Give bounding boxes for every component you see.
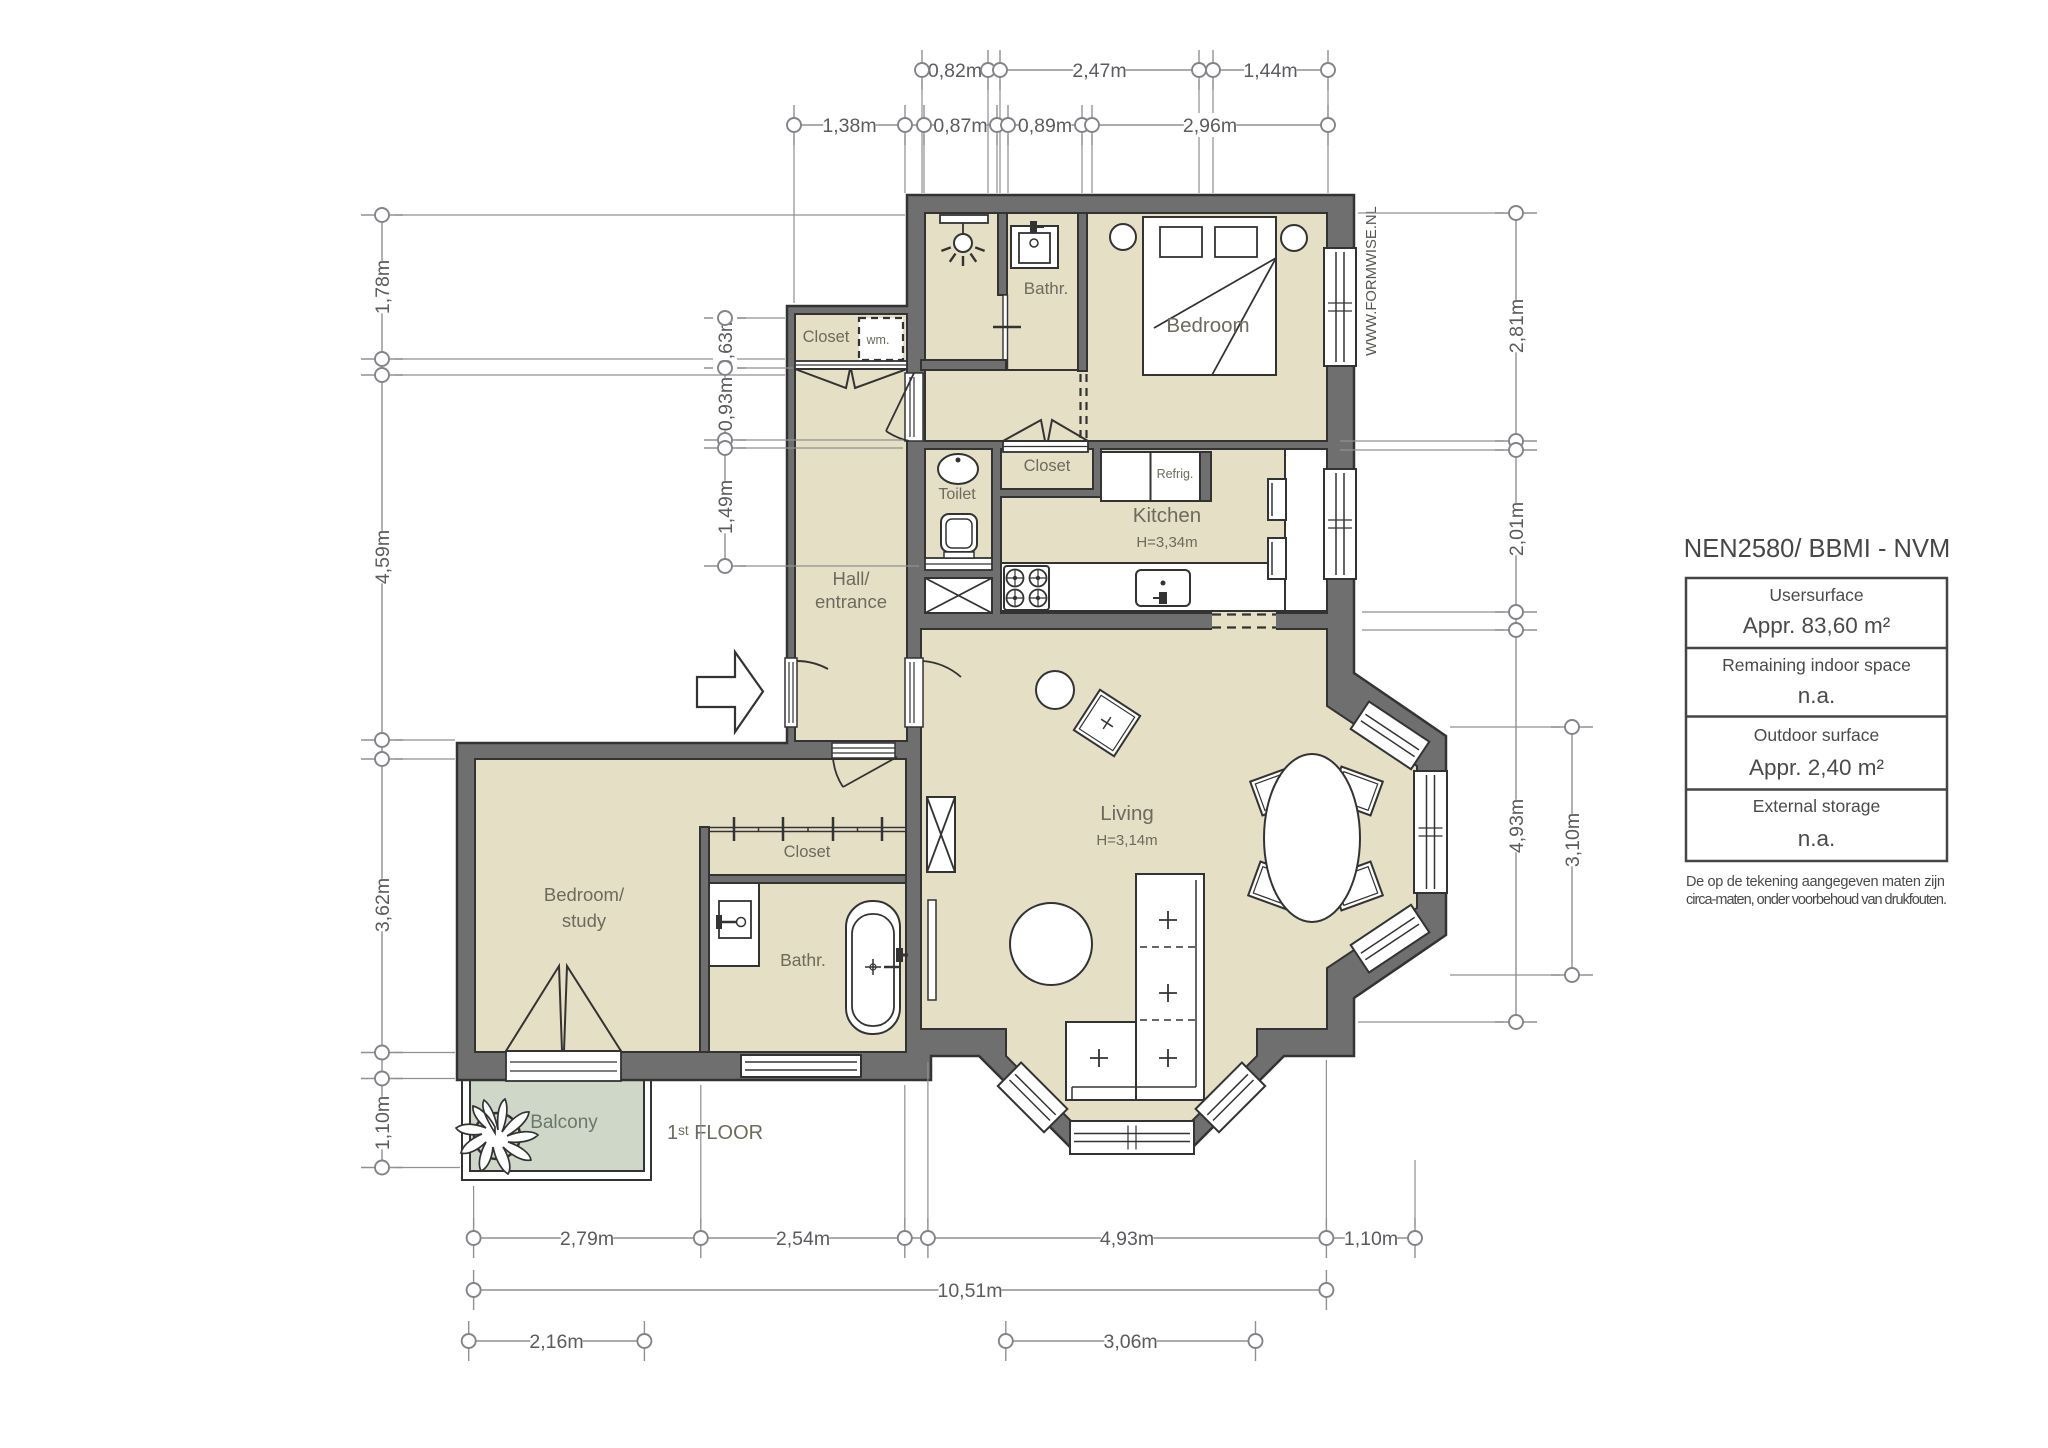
svg-text:Hall/: Hall/	[832, 568, 870, 589]
svg-text:Bedroom: Bedroom	[1166, 314, 1249, 337]
svg-text:study: study	[562, 910, 607, 931]
svg-text:Living: Living	[1100, 802, 1154, 825]
svg-text:1,10m: 1,10m	[1344, 1228, 1398, 1250]
svg-text:Appr. 83,60 m²: Appr. 83,60 m²	[1743, 613, 1891, 638]
svg-text:2,54m: 2,54m	[776, 1228, 830, 1250]
svg-text:Closet: Closet	[1024, 457, 1071, 475]
svg-text:4,93m: 4,93m	[1100, 1228, 1154, 1250]
svg-text:Kitchen: Kitchen	[1133, 504, 1201, 527]
svg-text:1,49m: 1,49m	[715, 480, 737, 534]
svg-text:Outdoor surface: Outdoor surface	[1754, 725, 1879, 745]
svg-text:2,96m: 2,96m	[1183, 115, 1237, 137]
svg-text:2,16m: 2,16m	[529, 1331, 583, 1353]
svg-text:Appr. 2,40 m²: Appr. 2,40 m²	[1749, 755, 1885, 780]
svg-text:3,10m: 3,10m	[1562, 813, 1584, 867]
svg-text:0,93m: 0,93m	[715, 377, 737, 431]
svg-text:10,51m: 10,51m	[937, 1280, 1002, 1302]
svg-text:WWW.FORMWISE.NL: WWW.FORMWISE.NL	[1364, 206, 1380, 356]
svg-text:NEN2580/ BBMI - NVM: NEN2580/ BBMI - NVM	[1684, 535, 1950, 563]
svg-text:Usersurface: Usersurface	[1769, 585, 1863, 605]
svg-text:2,81m: 2,81m	[1506, 299, 1528, 353]
svg-text:Balcony: Balcony	[530, 1112, 598, 1133]
svg-text:Bathr.: Bathr.	[1024, 279, 1068, 298]
svg-text:1,10m: 1,10m	[372, 1096, 394, 1150]
svg-text:Bedroom/: Bedroom/	[544, 884, 625, 905]
svg-text:H=3,14m: H=3,14m	[1096, 832, 1157, 849]
svg-text:Closet: Closet	[803, 328, 850, 346]
svg-text:3,62m: 3,62m	[372, 878, 394, 932]
svg-text:0,89m: 0,89m	[1018, 115, 1072, 137]
svg-text:Refrig.: Refrig.	[1157, 467, 1194, 481]
svg-text:2,79m: 2,79m	[560, 1228, 614, 1250]
svg-text:circa-maten, onder voorbehoud: circa-maten, onder voorbehoud van drukfo…	[1686, 892, 1947, 908]
svg-text:2,01m: 2,01m	[1506, 502, 1528, 556]
svg-text:0,87m: 0,87m	[933, 115, 987, 137]
svg-text:4,59m: 4,59m	[372, 530, 394, 584]
svg-text:wm.: wm.	[866, 333, 890, 347]
svg-text:3,06m: 3,06m	[1103, 1331, 1157, 1353]
svg-text:entrance: entrance	[815, 591, 887, 612]
svg-text:n.a.: n.a.	[1798, 683, 1836, 708]
svg-text:2,47m: 2,47m	[1072, 60, 1126, 82]
svg-text:Toilet: Toilet	[938, 486, 976, 503]
svg-text:Remaining indoor space: Remaining indoor space	[1722, 655, 1911, 675]
svg-text:H=3,34m: H=3,34m	[1136, 534, 1197, 551]
svg-text:1,38m: 1,38m	[822, 115, 876, 137]
svg-text:1,78m: 1,78m	[372, 260, 394, 314]
svg-text:Bathr.: Bathr.	[780, 950, 826, 970]
svg-text:External storage: External storage	[1753, 796, 1880, 816]
svg-text:4,93m: 4,93m	[1506, 799, 1528, 853]
svg-text:Closet: Closet	[784, 843, 831, 861]
svg-text:De op de tekening aangegeven m: De op de tekening aangegeven maten zijn	[1686, 874, 1945, 890]
svg-text:n.a.: n.a.	[1798, 826, 1836, 851]
svg-text:1,44m: 1,44m	[1243, 60, 1297, 82]
svg-text:0,82m: 0,82m	[928, 60, 982, 82]
